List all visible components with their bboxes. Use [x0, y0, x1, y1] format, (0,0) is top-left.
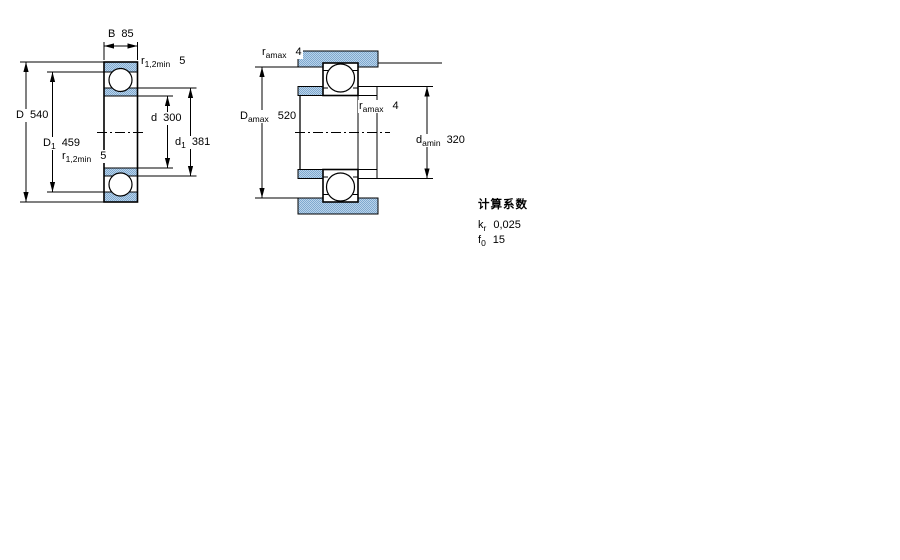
- dim-label-D: D540: [15, 109, 49, 122]
- dim-label-d: d300: [150, 112, 182, 125]
- calc-factor-kr: kr0,025: [478, 219, 528, 232]
- dim-label-ramax-shaft: ramax4: [358, 100, 400, 113]
- mounting-dimensions-drawing: [255, 51, 442, 214]
- ball-top: [109, 69, 132, 92]
- ball-bottom: [109, 173, 132, 196]
- shaft-shoulder-bottom: [298, 170, 323, 179]
- bearing-drawing-page: B85 r1,2min5 D540 D1459 r1,2min5 d300 d1…: [0, 0, 900, 560]
- dim-label-ramax-housing: ramax4: [261, 46, 303, 59]
- ball-bottom: [327, 173, 355, 201]
- ball-top: [327, 64, 355, 92]
- calc-factor-f0: f015: [478, 234, 528, 247]
- calculation-factors-block: 计算系数 kr0,025 f015: [478, 199, 528, 247]
- shaft-shoulder-top: [298, 87, 323, 96]
- dim-label-r12min-bottom: r1,2min5: [61, 150, 107, 163]
- dim-label-B: B85: [107, 28, 135, 41]
- dim-label-damin: damin320: [415, 134, 466, 147]
- calculation-factors-heading: 计算系数: [478, 199, 528, 212]
- dim-label-D1: D1459: [42, 137, 81, 150]
- dim-label-r12min-top: r1,2min5: [140, 55, 186, 68]
- dim-label-d1: d1381: [174, 136, 211, 149]
- technical-drawing-svg: [0, 0, 900, 560]
- dim-label-Damax: Damax520: [239, 110, 297, 123]
